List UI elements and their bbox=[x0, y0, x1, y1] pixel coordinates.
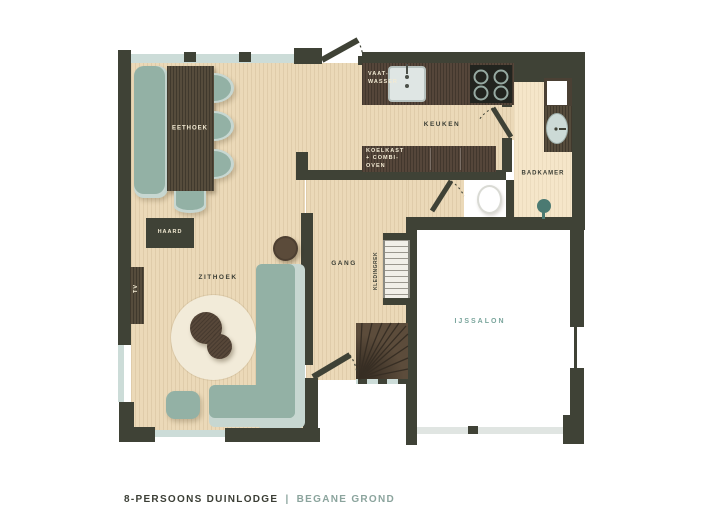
bath-sink bbox=[546, 113, 568, 144]
dining-chair-seat bbox=[176, 191, 204, 210]
lodge-name: 8-PERSOONS DUINLODGE bbox=[124, 494, 278, 505]
ijssalon-corner-wall bbox=[563, 415, 584, 444]
wc-right-wall bbox=[506, 180, 514, 217]
floor-name: BEGANE GROND bbox=[297, 494, 395, 505]
top-window-mullion bbox=[184, 52, 196, 62]
kitchen-label: KEUKEN bbox=[424, 120, 460, 130]
ijssalon-bottom-window bbox=[417, 427, 565, 434]
left-window bbox=[118, 345, 124, 402]
wardrobe-rack-cap bbox=[383, 298, 410, 305]
side-table bbox=[273, 236, 298, 261]
right-wall-upper bbox=[572, 52, 585, 230]
left-corner-wall bbox=[119, 427, 155, 442]
pouf bbox=[166, 391, 200, 419]
cooktop bbox=[470, 65, 512, 103]
dining-chair bbox=[174, 191, 206, 213]
counter-divider bbox=[460, 148, 461, 170]
top-entry-wall bbox=[294, 48, 322, 64]
wardrobe-rack-label: KLEDINGREK bbox=[373, 240, 381, 302]
top-window-mullion bbox=[239, 52, 251, 62]
dining-chair-seat bbox=[214, 151, 231, 177]
dishwasher-label: VAAT- WASSER bbox=[368, 71, 398, 87]
sink-drain bbox=[405, 84, 409, 88]
bathroom-label: BADKAMER bbox=[522, 170, 565, 179]
bottom-left-window bbox=[155, 430, 225, 437]
bath-left-wall-lower bbox=[502, 138, 512, 172]
ijssalon-right-wall-upper bbox=[570, 230, 584, 327]
washer bbox=[547, 81, 567, 105]
ijssalon-floor bbox=[418, 230, 570, 427]
wardrobe-rack bbox=[383, 240, 410, 298]
ijssalon-top-wall bbox=[408, 217, 585, 230]
living-bottom-right-wall bbox=[303, 378, 318, 442]
dining-chair-seat bbox=[214, 75, 231, 101]
caption-divider: | bbox=[282, 494, 292, 505]
entrance-door-top bbox=[322, 40, 363, 60]
caption: 8-PERSOONS DUINLODGE | BEGANE GROND bbox=[124, 494, 395, 505]
coffee-table-small bbox=[207, 334, 232, 359]
fridge-oven-label: KOELKAST + COMBI- OVEN bbox=[366, 148, 404, 170]
wardrobe-rack-cap bbox=[383, 233, 410, 240]
tv-cabinet bbox=[130, 267, 144, 324]
dining-chair-seat bbox=[214, 113, 231, 139]
ijssalon-right-window-frame bbox=[574, 327, 577, 368]
floorplan-canvas: EETHOEK HAARD TV ZITHOEK KEUKEN VAAT- WA… bbox=[0, 0, 713, 519]
shower-stem bbox=[542, 211, 545, 219]
top-window bbox=[131, 54, 297, 63]
counter-divider bbox=[430, 148, 431, 170]
fireplace-label: HAARD bbox=[158, 229, 183, 237]
tv-label: TV bbox=[133, 284, 141, 293]
living-area-label: ZITHOEK bbox=[198, 273, 237, 283]
ijssalon-window-mullion bbox=[468, 426, 478, 434]
dining-bench bbox=[134, 66, 165, 194]
icecream-parlor-label: IJSSALON bbox=[454, 317, 505, 328]
hallway-label: GANG bbox=[331, 259, 357, 269]
toilet bbox=[477, 185, 502, 214]
sofa-horizontal-arm bbox=[209, 385, 295, 418]
vestibule-floor bbox=[408, 180, 464, 217]
stairs bbox=[356, 323, 408, 379]
dining-area-label: EETHOEK bbox=[172, 125, 208, 134]
